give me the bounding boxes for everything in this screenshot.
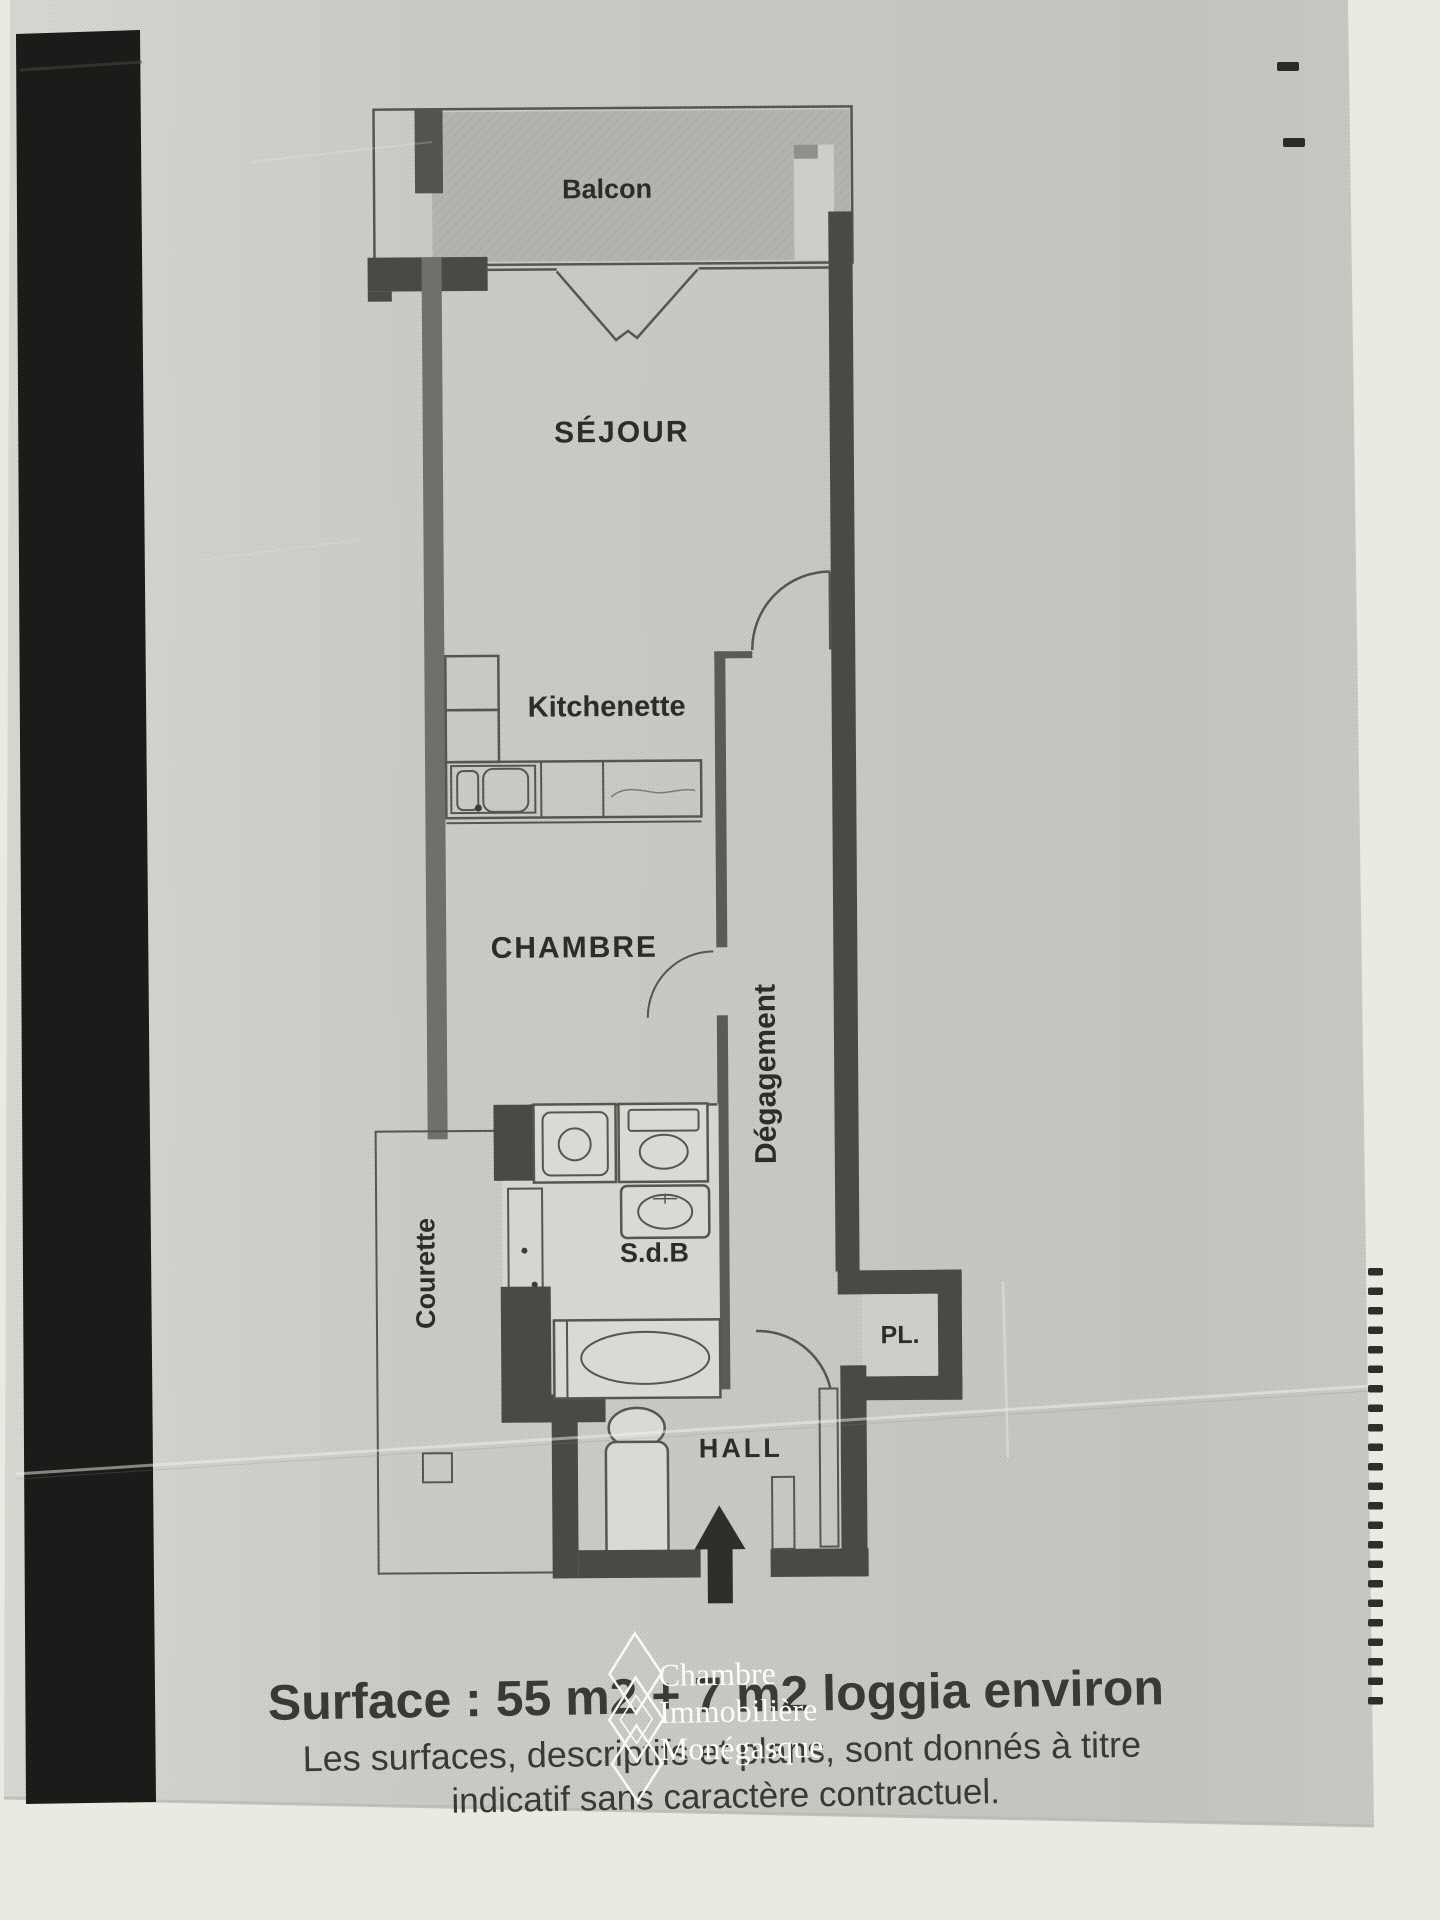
page-mark [1283,138,1305,147]
sejour-label: SÉJOUR [554,415,690,450]
degagement-label: Dégagement [749,984,783,1164]
floorplan-canvas: Balcon SÉJOUR [0,0,1440,1920]
balcon-label: Balcon [562,174,652,205]
courette-label: Courette [410,1218,441,1329]
balcony-pillar [414,109,443,193]
chambre-label: CHAMBRE [491,931,659,965]
page-mark [1277,62,1299,71]
placard-label: PL. [880,1321,919,1349]
left-black-band [16,30,156,1804]
wc-compartment [618,1103,708,1182]
watermark-line3: Monégasque [659,1728,823,1767]
balcony-notch [794,144,835,259]
watermark-line1: Chambre [658,1655,776,1693]
watermark-line2: Immobilière [659,1691,818,1730]
room-balcon: Balcon [373,106,852,265]
sdb-label: S.d.B [620,1238,689,1268]
washbasin-icon [621,1185,709,1238]
scanned-floorplan-photo: Balcon SÉJOUR [0,0,1440,1920]
hall-label: HALL [699,1433,783,1464]
shower-icon [533,1104,616,1183]
kitchenette-label: Kitchenette [528,691,686,724]
